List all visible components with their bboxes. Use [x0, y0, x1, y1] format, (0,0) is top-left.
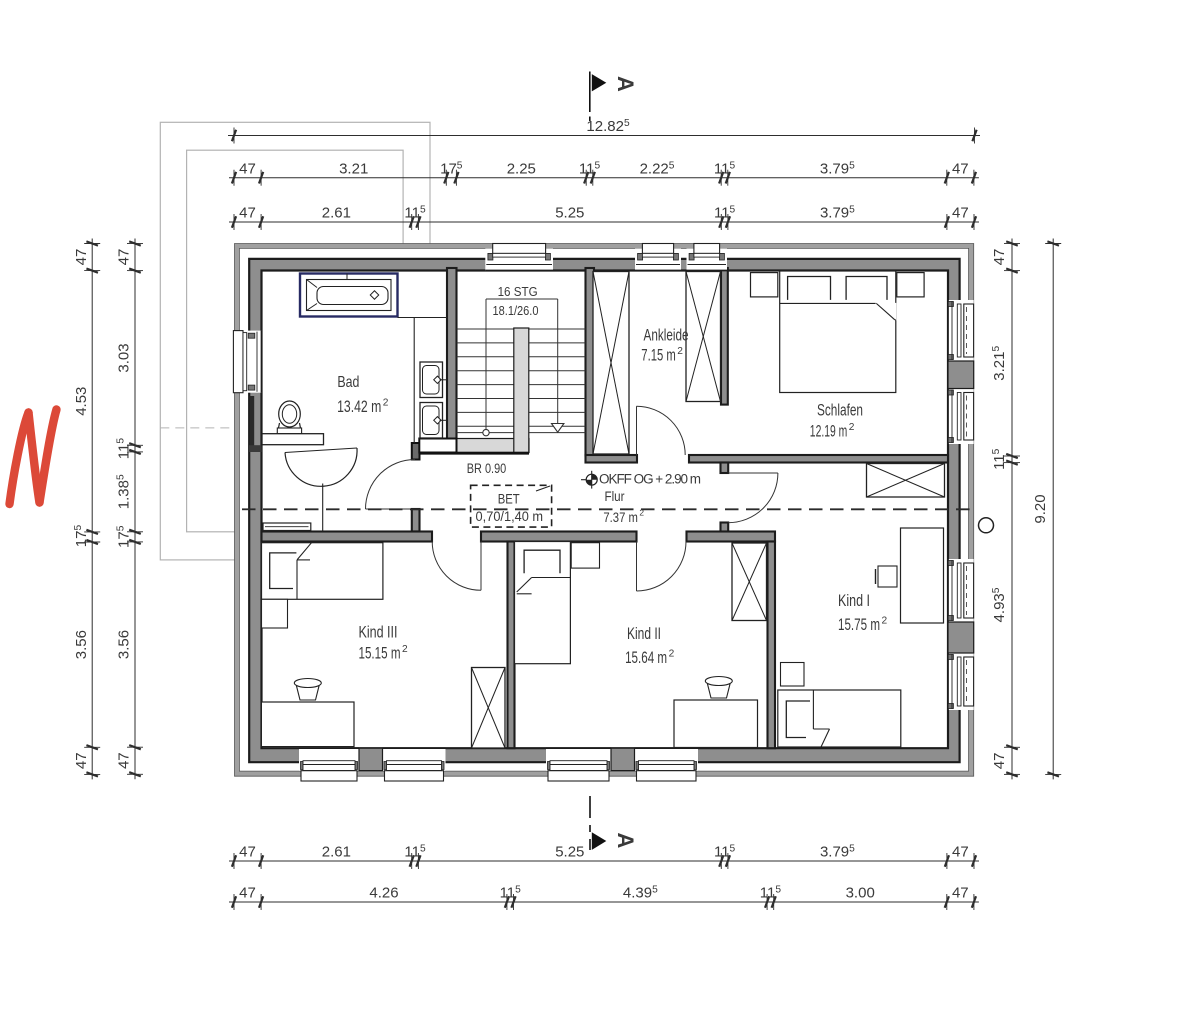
svg-text:47: 47 — [952, 205, 969, 222]
svg-text:47: 47 — [952, 160, 969, 177]
svg-text:4.53: 4.53 — [73, 387, 90, 416]
svg-text:47: 47 — [239, 205, 256, 222]
svg-text:47: 47 — [991, 753, 1008, 770]
svg-text:47: 47 — [239, 843, 256, 860]
svg-text:47: 47 — [952, 885, 969, 902]
svg-text:13.42 m: 13.42 m — [337, 398, 381, 416]
svg-text:Bad: Bad — [337, 374, 359, 391]
svg-text:47: 47 — [239, 160, 256, 177]
svg-text:0,70/1,40 m: 0,70/1,40 m — [476, 509, 544, 524]
svg-text:7.37 m: 7.37 m — [603, 510, 638, 525]
svg-text:OKFF OG + 2.90 m: OKFF OG + 2.90 m — [599, 472, 701, 487]
svg-text:3.56: 3.56 — [116, 630, 133, 659]
svg-text:18.1/26.0: 18.1/26.0 — [493, 303, 539, 318]
svg-text:47: 47 — [73, 752, 90, 769]
svg-text:2: 2 — [849, 422, 855, 433]
svg-text:Flur: Flur — [605, 489, 625, 504]
svg-text:15.64 m: 15.64 m — [625, 649, 667, 667]
svg-text:BET: BET — [498, 492, 520, 507]
svg-text:A: A — [613, 833, 638, 849]
svg-text:BR 0.90: BR 0.90 — [467, 461, 507, 476]
svg-text:5.25: 5.25 — [555, 205, 584, 222]
svg-text:9.20: 9.20 — [1032, 494, 1049, 523]
svg-text:Ankleide: Ankleide — [644, 327, 689, 345]
svg-text:2: 2 — [402, 644, 408, 655]
svg-text:47: 47 — [952, 843, 969, 860]
svg-text:16 STG: 16 STG — [498, 284, 538, 299]
svg-text:2: 2 — [882, 616, 888, 627]
svg-text:3.56: 3.56 — [73, 630, 90, 659]
svg-text:15.75 m: 15.75 m — [838, 616, 880, 634]
svg-text:47: 47 — [991, 249, 1008, 266]
svg-text:2: 2 — [677, 346, 683, 357]
svg-text:5.25: 5.25 — [555, 843, 584, 860]
svg-text:Kind I: Kind I — [838, 592, 870, 610]
svg-text:47: 47 — [116, 752, 133, 769]
svg-text:3.21: 3.21 — [339, 160, 368, 177]
svg-text:47: 47 — [116, 249, 133, 266]
svg-text:Kind II: Kind II — [627, 625, 661, 643]
svg-text:7.15 m: 7.15 m — [641, 347, 676, 365]
svg-text:47: 47 — [73, 249, 90, 266]
svg-text:3.03: 3.03 — [116, 343, 133, 372]
svg-text:3.00: 3.00 — [846, 885, 875, 902]
svg-text:12.825: 12.825 — [586, 118, 630, 135]
svg-text:2.61: 2.61 — [322, 205, 351, 222]
svg-text:47: 47 — [239, 885, 256, 902]
svg-text:2: 2 — [639, 508, 644, 518]
svg-text:2.25: 2.25 — [507, 160, 536, 177]
svg-text:Kind III: Kind III — [359, 624, 398, 642]
svg-text:2: 2 — [383, 397, 389, 408]
svg-text:A: A — [613, 76, 638, 92]
svg-text:2: 2 — [669, 649, 675, 660]
svg-text:15.15 m: 15.15 m — [359, 644, 401, 662]
svg-text:4.26: 4.26 — [369, 885, 398, 902]
svg-text:12.19 m: 12.19 m — [810, 422, 848, 440]
svg-text:2.61: 2.61 — [322, 843, 351, 860]
svg-text:Schlafen: Schlafen — [817, 401, 863, 419]
